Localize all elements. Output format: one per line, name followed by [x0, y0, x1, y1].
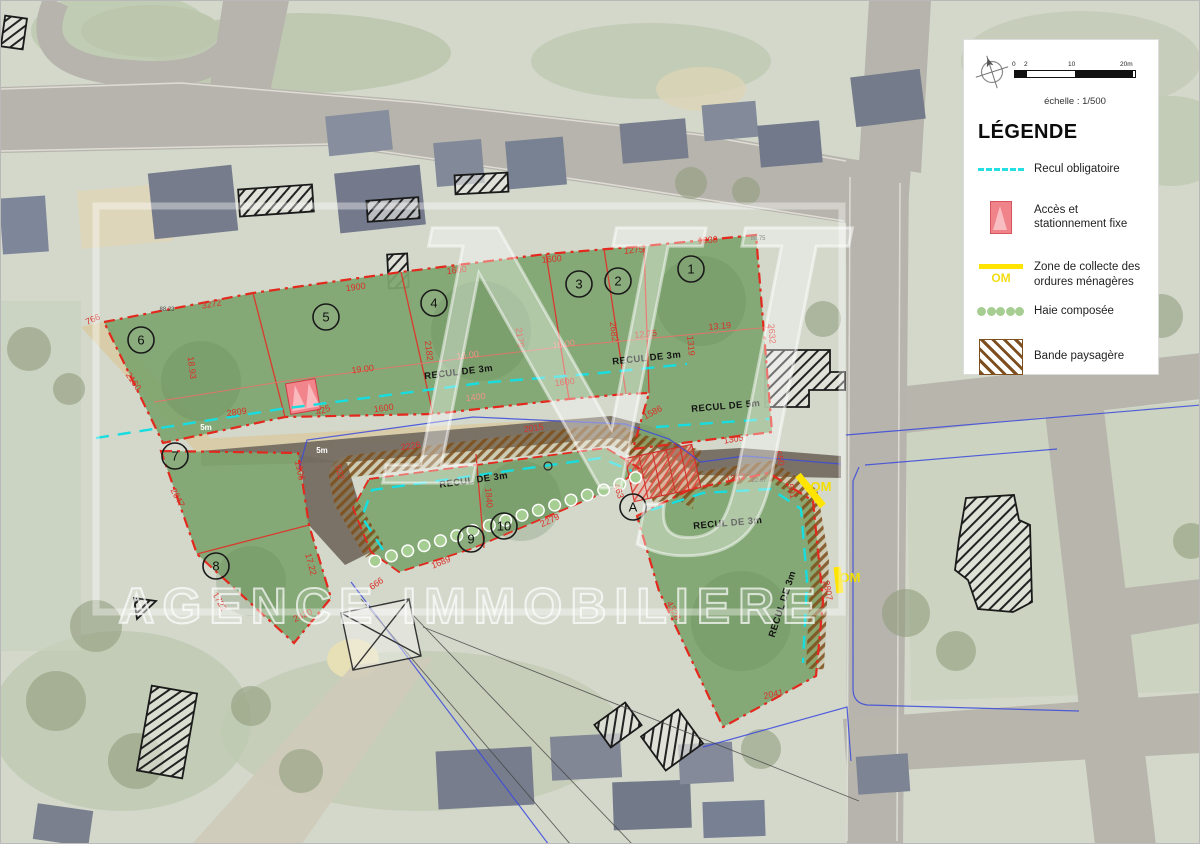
plot-label-5: 5: [313, 304, 339, 330]
scale-bar-ticks: 0 2 10 20m: [1014, 61, 1146, 70]
compass-icon: [974, 54, 1010, 90]
legend-item-acces: Accès et stationnement fixe: [964, 201, 1158, 234]
scale-tick: 0: [1012, 61, 1016, 68]
green-dots-icon: [977, 307, 1025, 316]
scale-bar-segments: [1014, 70, 1136, 78]
svg-text:5: 5: [322, 310, 329, 325]
plot-label-8: 8: [203, 553, 229, 579]
scale-tick: 10: [1068, 61, 1075, 68]
svg-text:6: 6: [137, 333, 144, 348]
svg-text:7: 7: [171, 449, 178, 464]
brown-hatch-icon: [979, 339, 1023, 375]
legend-item-label: Recul obligatoire: [1024, 162, 1120, 177]
legend-item-recul: Recul obligatoire: [964, 162, 1158, 177]
measurement-label: 88.23: [159, 307, 175, 313]
plot-label-6: 6: [128, 327, 154, 353]
watermark-agency-text: AGENCE IMMOBILIERE: [118, 578, 823, 634]
legend-item-om: OM Zone de collecte des ordures ménagère…: [964, 260, 1158, 290]
scale-caption: échelle : 1/500: [992, 96, 1158, 107]
legend-item-label: Haie composée: [1024, 304, 1114, 319]
legend-item-label: Bande paysagère: [1024, 349, 1124, 364]
om-symbol-text: OM: [991, 271, 1010, 285]
legend-item-haie: Haie composée: [964, 304, 1158, 319]
plot-label-7: 7: [162, 443, 188, 469]
watermark-initials: NJ: [379, 158, 855, 566]
road-width-marker: 5m: [316, 446, 328, 455]
scale-tick: 20m: [1120, 61, 1133, 68]
svg-text:8: 8: [212, 559, 219, 574]
cyan-dashed-line-icon: [978, 168, 1024, 171]
scale-tick: 2: [1024, 61, 1028, 68]
legend-item-bande: Bande paysagère: [964, 339, 1158, 375]
legend-panel: 0 2 10 20m échelle : 1/500 LÉGENDE Recul…: [963, 39, 1159, 375]
om-line-icon: [979, 264, 1023, 269]
road-width-marker: 5m: [200, 423, 212, 432]
site-plan-screenshot: 32721900160016001275133088.7588.23766216…: [0, 0, 1200, 844]
legend-title: LÉGENDE: [964, 115, 1158, 162]
access-parking-icon: [990, 201, 1012, 234]
legend-item-label: Accès et stationnement fixe: [1024, 203, 1150, 233]
scale-bar: 0 2 10 20m: [1014, 61, 1146, 78]
legend-item-label: Zone de collecte des ordures ménagères: [1024, 260, 1150, 290]
